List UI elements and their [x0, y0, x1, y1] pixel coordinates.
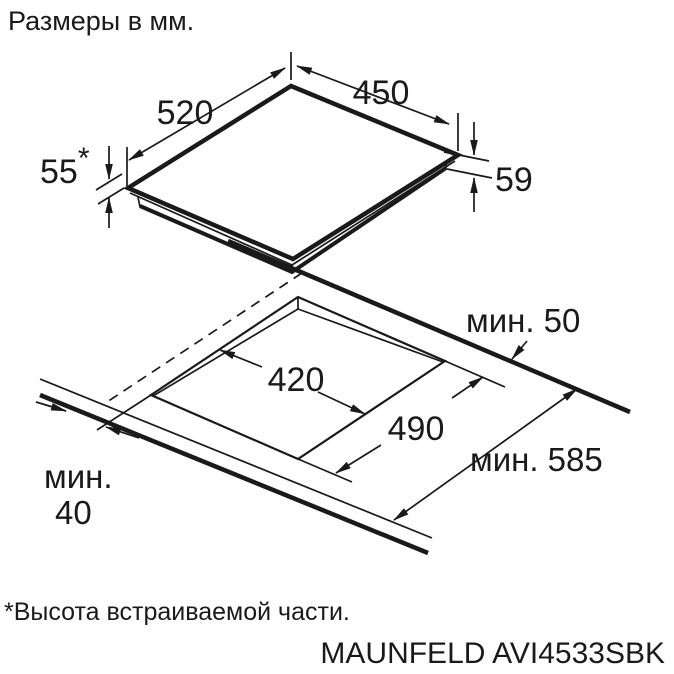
model-name: MAUNFELD AVI4533SBK	[320, 637, 665, 670]
hob-view: 520 450 55* 59	[40, 52, 533, 272]
dim-59-label: 59	[495, 161, 533, 199]
dim-59-tick-bottom	[447, 169, 492, 178]
hob-body-left-face	[138, 197, 140, 207]
hob-glass-bottom-edge	[130, 161, 455, 265]
cutout-bottom-extension	[298, 459, 352, 482]
dim-490-line-a	[452, 377, 483, 398]
worktop-view: 420 490 мин. 50 мин. 585 мин. 40	[36, 241, 630, 553]
dim-490-label: 490	[388, 410, 445, 448]
dim-450-label: 450	[353, 74, 410, 112]
dim-520-label: 520	[157, 94, 214, 132]
dim-420-line-a	[220, 350, 262, 367]
dim-490-line-b	[336, 445, 381, 473]
dim-55-tick-bottom	[98, 188, 124, 204]
page-title: Размеры в мм.	[8, 6, 194, 36]
dim-420-line-b	[318, 392, 365, 414]
clearance-front-label-value: 40	[55, 494, 92, 531]
clearance-back-label: мин. 50	[466, 302, 580, 339]
dim-55-label: 55*	[40, 142, 90, 191]
cutout-left-extension	[97, 395, 151, 430]
installation-diagram: 520 450 55* 59	[0, 0, 674, 674]
cutout-lip-right	[298, 309, 443, 362]
clearance-total-label: мин. 585	[470, 441, 603, 478]
clearance-front-label-word: мин.	[44, 458, 113, 495]
footnote: *Высота встраиваемой части.	[4, 598, 350, 626]
dim-420-label: 420	[268, 361, 325, 399]
clearance-back-leader	[512, 341, 527, 359]
